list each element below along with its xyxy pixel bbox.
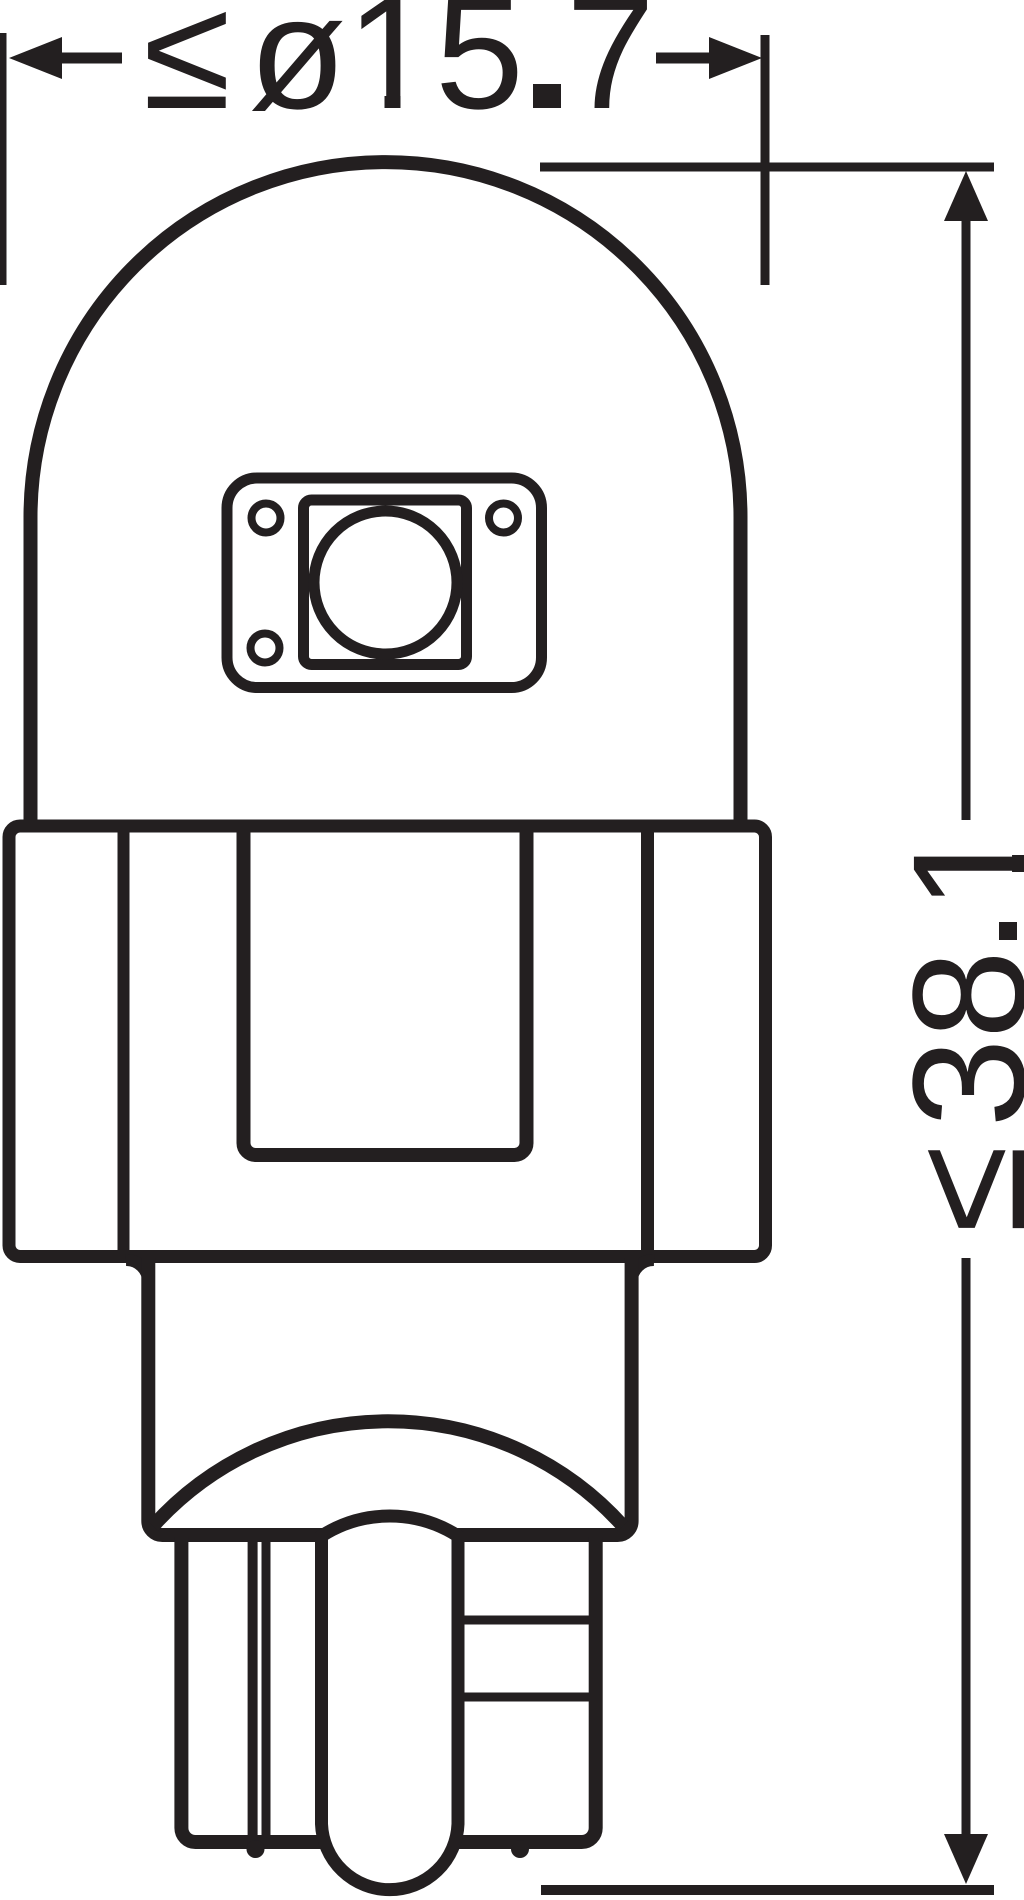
svg-text:15: 15 [346,0,524,142]
svg-text:≤: ≤ [879,1145,1024,1233]
svg-text:3: 3 [879,1039,1024,1128]
svg-text:ø: ø [249,0,347,142]
svg-text:1: 1 [879,822,1024,911]
svg-text:8: 8 [879,950,1024,1039]
svg-text:≤: ≤ [143,0,231,142]
svg-text:7: 7 [566,0,655,142]
